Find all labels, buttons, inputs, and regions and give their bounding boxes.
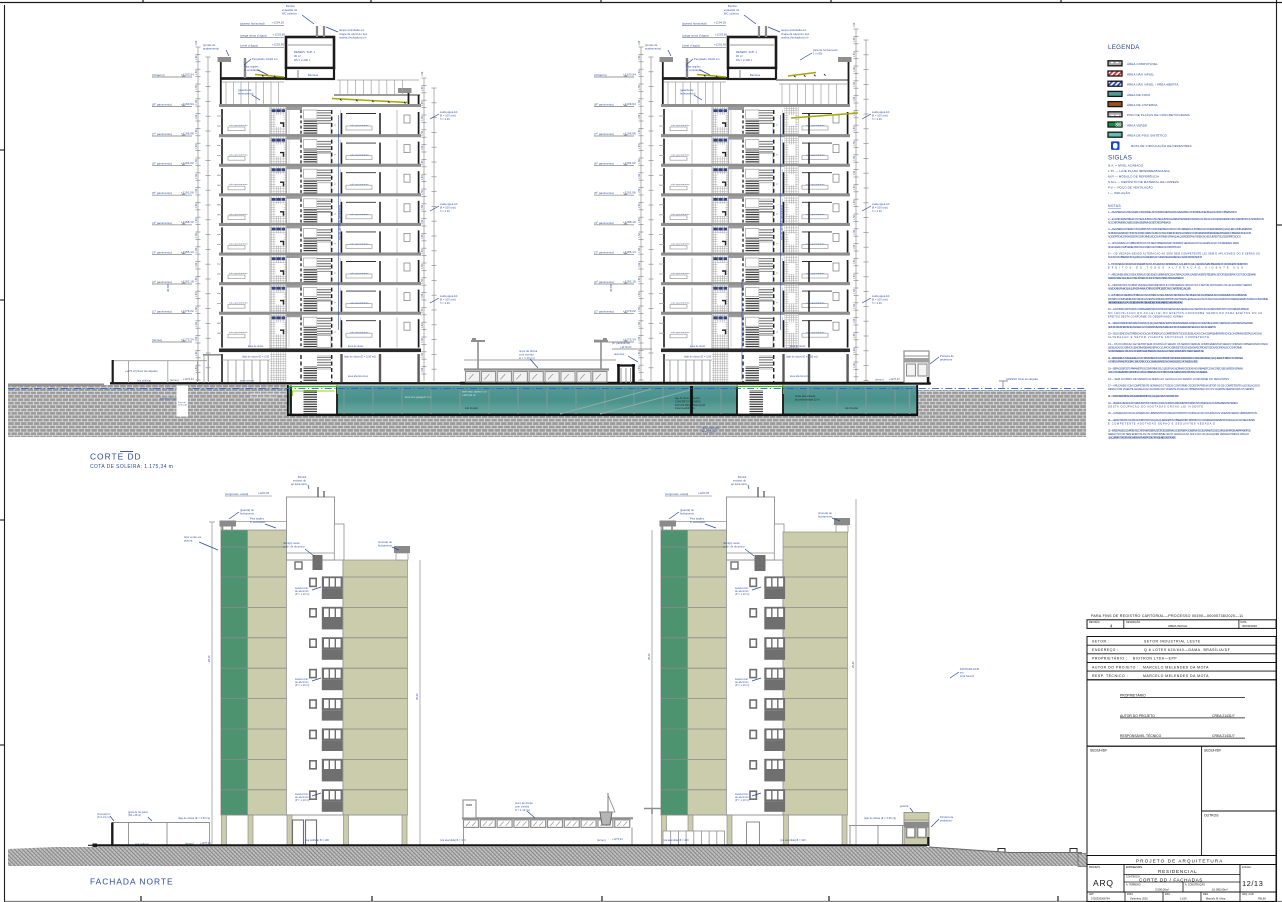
svg-text:sala apartamento: sala apartamento	[806, 154, 825, 157]
svg-text:desnível: desnível	[614, 353, 624, 356]
svg-text:30 m³: 30 m³	[736, 54, 743, 58]
svg-text:LEGISLACAO DO SEM OS LEI NORMA: LEGISLACAO DO SEM OS LEI NORMA DEMAIS SE…	[1108, 346, 1242, 350]
svg-text:12/13: 12/13	[1242, 879, 1263, 888]
svg-text:(8º pavimento): (8º pavimento)	[152, 103, 172, 107]
svg-text:rota de ventilação permanente: rota de ventilação permanente	[338, 204, 342, 240]
svg-text:s/ ventilação: s/ ventilação	[244, 68, 260, 72]
svg-text:h = 2,20: h = 2,20	[872, 210, 882, 213]
svg-text:RESIDENCIAL: RESIDENCIAL	[1158, 869, 1197, 874]
svg-text:NO DISTRITO ADOTADAS DESTA CON: NO DISTRITO ADOTADAS DESTA CONFORME USO …	[1108, 234, 1241, 238]
svg-text:EMPREENDIM.: EMPREENDIM.	[1126, 866, 1143, 869]
svg-text:(5º pavimento): (5º pavimento)	[152, 191, 172, 195]
svg-text:1,50: 1,50	[853, 244, 856, 249]
svg-text:13— OS OCUPACAO LEI SETOR SEM: 13— OS OCUPACAO LEI SETOR SEM OCUPACAO S…	[1108, 342, 1268, 346]
svg-text:1,50: 1,50	[195, 99, 198, 104]
svg-text:ÁREA NÃO VÁVEL: ÁREA NÃO VÁVEL	[1127, 71, 1154, 76]
svg-text:ALTERACAO E SETOR VIGENTE ADOT: ALTERACAO E SETOR VIGENTE ADOTADAS COMPE…	[1108, 335, 1209, 339]
svg-text:de profundidade 12 m: de profundidade 12 m	[795, 398, 819, 401]
svg-text:ÁREA DE CISTERNA: ÁREA DE CISTERNA	[1127, 103, 1158, 107]
svg-text:1,50: 1,50	[853, 141, 856, 146]
svg-text:ARQ: ARQ	[1093, 878, 1114, 888]
svg-text:(térreo): (térreo)	[152, 338, 162, 342]
svg-text:sala apartamento: sala apartamento	[806, 124, 825, 127]
svg-text:DISTRITO COMPLEMENTAR VEDADA A: DISTRITO COMPLEMENTAR VEDADA A DESTA NOR…	[1108, 297, 1268, 301]
svg-text:tinta Suvinil: tinta Suvinil	[960, 675, 974, 678]
svg-text:1,50: 1,50	[421, 219, 424, 224]
svg-text:(acesso horizontal): (acesso horizontal)	[240, 22, 265, 26]
svg-text:maleta (fechadura) m²: maleta (fechadura) m²	[339, 36, 367, 40]
svg-text:sala apartamento: sala apartamento	[350, 154, 369, 157]
svg-text:sala apartamento: sala apartamento	[350, 302, 369, 305]
svg-text:1,50: 1,50	[195, 203, 198, 208]
svg-text:s/ ventilação: s/ ventilação	[250, 521, 266, 524]
svg-text:sala apartamento: sala apartamento	[671, 302, 690, 305]
svg-text:18— OS NORMA ADOTADAS NORMA VI: 18— OS NORMA ADOTADAS NORMA VIGENTE DIST…	[1108, 394, 1179, 398]
svg-text:impermeabilizada: impermeabilizada	[675, 407, 695, 410]
svg-text:1,50: 1,50	[853, 185, 856, 190]
svg-text:1,50: 1,50	[195, 233, 198, 238]
svg-text:CONTEÚDO: CONTEÚDO	[1126, 876, 1140, 879]
svg-text:CORTE DD: CORTE DD	[90, 452, 142, 462]
svg-text:Portaria de: Portaria de	[940, 354, 954, 358]
svg-text:1,50: 1,50	[195, 159, 198, 164]
svg-text:(h=1,10 m): (h=1,10 m)	[97, 816, 110, 819]
svg-text:WC coletivo: WC coletivo	[724, 12, 739, 16]
svg-text:1,50: 1,50	[421, 352, 424, 357]
svg-text:1,50: 1,50	[421, 71, 424, 76]
svg-text:sala apartamento: sala apartamento	[671, 213, 690, 216]
svg-text:sala apartamento: sala apartamento	[350, 183, 369, 186]
svg-text:(P = 1,10 m): (P = 1,10 m)	[295, 799, 309, 802]
svg-text:1,50: 1,50	[638, 233, 641, 238]
svg-text:(P = 1,10 m): (P = 1,10 m)	[735, 684, 749, 687]
svg-text:N.A. = NÍVEL ACABADO: N.A. = NÍVEL ACABADO	[1108, 164, 1144, 168]
svg-text:1,50: 1,50	[195, 336, 198, 341]
svg-text:NOTAS: NOTAS	[1108, 204, 1121, 208]
svg-text:1,50: 1,50	[421, 101, 424, 106]
svg-text:DES.: DES.	[1203, 893, 1209, 896]
svg-text:guarita: guarita	[900, 805, 909, 808]
svg-text:ÁREA VERDE: ÁREA VERDE	[1127, 123, 1147, 127]
svg-text:A. CONSTRUÇÃO: A. CONSTRUÇÃO	[1185, 884, 1205, 887]
svg-text:1,50: 1,50	[853, 126, 856, 131]
svg-text:ART: ART	[1089, 893, 1094, 896]
svg-text:sala apartamento: sala apartamento	[229, 302, 248, 305]
svg-text:ÁREA DE COPA: ÁREA DE COPA	[1127, 93, 1150, 97]
svg-text:29,40: 29,40	[851, 661, 855, 668]
svg-text:1,50: 1,50	[421, 130, 424, 135]
svg-text:+1203,60: +1203,60	[273, 33, 285, 37]
svg-text:área de dutos: área de dutos	[248, 345, 264, 348]
svg-text:1,50: 1,50	[195, 247, 198, 252]
svg-text:fechamento): fechamento)	[238, 91, 254, 95]
svg-text:AUTOR DO PROJETO :: AUTOR DO PROJETO :	[1092, 665, 1139, 669]
svg-text:sala apartamento: sala apartamento	[671, 154, 690, 157]
svg-text:SETOR :: SETOR :	[1092, 639, 1109, 643]
svg-text:ENDEREÇO :: ENDEREÇO :	[1092, 648, 1119, 652]
svg-text:(térreo): (térreo)	[170, 379, 179, 382]
svg-text:1,50: 1,50	[853, 229, 856, 234]
svg-text:térreo técnico: térreo técnico	[702, 426, 720, 430]
svg-text:1,50: 1,50	[853, 96, 856, 101]
svg-text:(carga única d`água): (carga única d`água)	[240, 34, 267, 38]
svg-text:ROTA DE CIRCULAÇÃO DE PEDESTRE: ROTA DE CIRCULAÇÃO DE PEDESTRES	[1131, 143, 1192, 148]
svg-text:1,50: 1,50	[195, 40, 198, 45]
svg-text:4— APLICAVEIS AO URBANISTICOS: 4— APLICAVEIS AO URBANISTICOS OS SEM OBS…	[1108, 241, 1239, 245]
svg-text:+1175,34: +1175,34	[183, 378, 194, 381]
svg-text:FOLHA :: FOLHA :	[1242, 865, 1252, 869]
svg-text:exaustão do: exaustão do	[724, 8, 740, 12]
svg-text:(laje de dutos (E = 3,50 m)): (laje de dutos (E = 3,50 m))	[344, 356, 376, 359]
svg-text:M.R.— MÓDULO DE REFERÊNCIA: M.R.— MÓDULO DE REFERÊNCIA	[1108, 174, 1159, 179]
svg-text:1,50: 1,50	[638, 262, 641, 267]
svg-text:(1º pavimento): (1º pavimento)	[612, 341, 630, 345]
svg-text:PROJETO DE ARQUITETURA: PROJETO DE ARQUITETURA	[1136, 858, 1223, 863]
svg-text:10— A ACORDO ADOTADAS COMPLEME: 10— A ACORDO ADOTADAS COMPLEMENTAR ADOTA…	[1108, 307, 1249, 311]
svg-text:1,50: 1,50	[421, 264, 424, 269]
svg-text:h = 2,20: h = 2,20	[440, 118, 450, 121]
svg-text:s/ ventilação: s/ ventilação	[686, 68, 702, 72]
svg-text:17— APLICAVEIS COM COMPETENTE: 17— APLICAVEIS COM COMPETENTE NORMAS E E…	[1108, 384, 1260, 388]
svg-text:1,50: 1,50	[421, 323, 424, 328]
svg-text:RESERV. SUP. 1: RESERV. SUP. 1	[294, 50, 316, 54]
svg-text:1,50: 1,50	[195, 70, 198, 75]
svg-text:(via pública): (via pública)	[137, 380, 151, 383]
svg-text:sub direção: sub direção	[845, 407, 859, 410]
svg-text:1,50: 1,50	[853, 348, 856, 353]
svg-text:1,50: 1,50	[421, 308, 424, 313]
svg-text:ACESSO Nível da calçada: ACESSO Nível da calçada	[1006, 378, 1038, 381]
svg-text:(4º pavimento): (4º pavimento)	[594, 221, 614, 225]
svg-text:L.P.I.— LAJE PLANA IMPERMEABIL: L.P.I.— LAJE PLANA IMPERMEABILIZADA	[1108, 169, 1170, 173]
svg-text:H = 1,10 (m): H = 1,10 (m)	[519, 356, 535, 360]
svg-text:(1º pavimento): (1º pavimento)	[594, 310, 614, 314]
svg-text:1,50: 1,50	[421, 249, 424, 254]
svg-text:1 m 90): 1 m 90)	[813, 51, 823, 55]
svg-text:+1179,22: +1179,22	[620, 345, 632, 349]
svg-text:NORMAS A VEDADA DO TODOS NO AP: NORMAS A VEDADA DO TODOS NO APLICAVEIS O…	[1108, 231, 1251, 235]
svg-text:RESPONSÁVEL TÉCNICO: RESPONSÁVEL TÉCNICO	[1120, 733, 1162, 738]
svg-text:fechamento: fechamento	[240, 512, 255, 515]
svg-text:h = 2,20: h = 2,20	[872, 302, 882, 305]
svg-text:Setembro 2020: Setembro 2020	[1130, 897, 1148, 901]
svg-text:(P = 1,10 m): (P = 1,10 m)	[735, 593, 749, 596]
svg-text:1,50: 1,50	[195, 351, 198, 356]
svg-text:LEGENDA: LEGENDA	[1108, 44, 1140, 51]
svg-text:ap pára-raios: ap pára-raios	[291, 483, 308, 486]
svg-text:(laje de dutos (E = 3,50 m)): (laje de dutos (E = 3,50 m))	[786, 356, 818, 359]
svg-text:(térreo): (térreo)	[875, 379, 884, 382]
svg-text:1,50: 1,50	[195, 218, 198, 223]
svg-text:sala apartamento: sala apartamento	[229, 272, 248, 275]
svg-text:1,50: 1,50	[853, 22, 856, 27]
svg-text:1,50: 1,50	[421, 116, 424, 121]
svg-text:fechamento): fechamento)	[680, 91, 696, 95]
svg-text:SETOR NORMA DEMAIS DE OS ALTER: SETOR NORMA DEMAIS DE OS ALTERACAO COMPE…	[1108, 325, 1216, 329]
svg-text:maleta (fechadura) m²: maleta (fechadura) m²	[781, 36, 809, 40]
svg-text:P.V.— POÇO DE VENTILAÇÃO: P.V.— POÇO DE VENTILAÇÃO	[1108, 185, 1153, 190]
svg-text:pedestres: pedestres	[940, 819, 953, 822]
svg-text:sala apartamento: sala apartamento	[671, 272, 690, 275]
svg-text:s/ ventilação: s/ ventilação	[690, 521, 706, 524]
svg-text:SEDUH/DF: SEDUH/DF	[1204, 749, 1221, 753]
svg-text:sala apartamento: sala apartamento	[229, 183, 248, 186]
svg-text:+1204,20: +1204,20	[272, 21, 284, 25]
svg-text:(via atendida) B = 100: (via atendida) B = 100	[440, 839, 466, 842]
svg-text:+1203,60: +1203,60	[715, 33, 727, 37]
svg-text:1,50: 1,50	[638, 292, 641, 297]
svg-text:AUTORIZACAO PARAMETROS DEFINIC: AUTORIZACAO PARAMETROS DEFINICOES AUTORI…	[1108, 360, 1198, 364]
svg-text:(7º pavimento): (7º pavimento)	[594, 132, 614, 136]
svg-text:14— DESTA LEGISLACAO DE E LEGI: 14— DESTA LEGISLACAO DE E LEGISLACAO COM…	[1108, 356, 1243, 360]
svg-text:(verga tase +canal): (verga tase +canal)	[225, 493, 248, 496]
svg-text:fundo das estacas: fundo das estacas	[795, 395, 816, 398]
svg-text:SETOR INDUSTRIAL LESTE: SETOR INDUSTRIAL LESTE	[1144, 639, 1201, 643]
svg-text:1,50: 1,50	[638, 173, 641, 178]
svg-text:NO CONFORME APLICAVEIS OS SEM: NO CONFORME APLICAVEIS OS SEM OBSERVANDO…	[1108, 220, 1171, 224]
svg-text:(3º pavimento): (3º pavimento)	[152, 250, 172, 254]
svg-text:1,50: 1,50	[638, 203, 641, 208]
svg-text:(2º pavimento): (2º pavimento)	[152, 280, 172, 284]
svg-text:RS = 2.400 L: RS = 2.400 L	[294, 58, 311, 62]
svg-text:1,50: 1,50	[638, 55, 641, 60]
svg-text:(nível d`água): (nível d`água)	[240, 44, 258, 48]
svg-text:1,50: 1,50	[638, 70, 641, 75]
svg-text:30,80: 30,80	[166, 284, 170, 292]
svg-text:sala apartamento: sala apartamento	[806, 302, 825, 305]
svg-text:(guarda de: (guarda de	[238, 88, 252, 92]
svg-text:MARCELO MELENDES DA MOTA: MARCELO MELENDES DA MOTA	[1143, 674, 1209, 678]
svg-text:+1203,60: +1203,60	[258, 492, 270, 495]
svg-text:SERAO NO NO SEM EFEITOS AS OS: SERAO NO NO SEM EFEITOS AS OS CONFORME N…	[1108, 432, 1249, 436]
svg-text:infiltração: infiltração	[178, 404, 187, 407]
svg-text:1,50: 1,50	[195, 144, 198, 149]
svg-text:1,50: 1,50	[638, 85, 641, 90]
svg-text:6— TODOS SEM AO NORMAS USO AS: 6— TODOS SEM AO NORMAS USO AS EFEITOS US…	[1108, 262, 1248, 266]
svg-text:1,50: 1,50	[421, 338, 424, 343]
svg-text:COTA DE SOLEIRA: 1.175,34 m: COTA DE SOLEIRA: 1.175,34 m	[90, 464, 173, 470]
svg-text:1,50: 1,50	[195, 173, 198, 178]
svg-text:3— AS ALTERACAO SERAO OS AS DI: 3— AS ALTERACAO SERAO OS AS DISPOSTO COM…	[1108, 227, 1252, 231]
svg-text:1,50: 1,50	[853, 318, 856, 323]
svg-text:(térreo): (térreo)	[597, 839, 606, 842]
svg-text:DEFINICOES NA FEDERAL LEGISLAC: DEFINICOES NA FEDERAL LEGISLACAO OCUPACA…	[1108, 300, 1183, 304]
svg-text:sala apartamento: sala apartamento	[350, 272, 369, 275]
svg-text:1,50: 1,50	[853, 333, 856, 338]
svg-text:nível max. aterro (+) e: nível max. aterro (+) e	[462, 391, 487, 394]
svg-text:1,50: 1,50	[853, 363, 856, 368]
svg-text:chapa de alumínio tipo: chapa de alumínio tipo	[781, 32, 810, 36]
svg-text:2— E CONFORME PREVIA USO SEGUI: 2— E CONFORME PREVIA USO SEGUINTES A USO…	[1108, 217, 1264, 221]
svg-text:1,50: 1,50	[195, 188, 198, 193]
svg-text:CREA:21431/7: CREA:21431/7	[1212, 734, 1235, 738]
svg-text:1,50: 1,50	[421, 145, 424, 150]
svg-text:1,50: 1,50	[853, 274, 856, 279]
svg-text:DESTA OCUPACAO DO ADOTADAS ORG: DESTA OCUPACAO DO ADOTADAS ORGAO LEI VIG…	[1108, 404, 1203, 408]
svg-text:área aberta térreo: área aberta térreo	[348, 375, 369, 378]
svg-text:21— LEI ADOTADAS OCUPACAO DISP: 21— LEI ADOTADAS OCUPACAO DISPOSTO NA QU…	[1108, 418, 1255, 422]
svg-text:sala apartamento: sala apartamento	[806, 272, 825, 275]
svg-text:+1202,60: +1202,60	[272, 43, 284, 47]
svg-text:1,50: 1,50	[638, 188, 641, 193]
svg-text:(nível d`água): (nível d`água)	[682, 44, 700, 48]
svg-text:sala apartamento: sala apartamento	[229, 331, 248, 334]
svg-text:sala apartamento: sala apartamento	[229, 154, 248, 157]
svg-text:(P = 1,10 m): (P = 1,10 m)	[735, 799, 749, 802]
svg-text:PROPRIETÁRIO: PROPRIETÁRIO	[1120, 694, 1146, 698]
svg-text:DATA: DATA	[1127, 893, 1133, 896]
svg-text:ap pára-raios: ap pára-raios	[731, 483, 748, 486]
svg-text:16— SEM ACORDO DE DEMAIS ALTER: 16— SEM ACORDO DE DEMAIS ALTERACAO LEGIS…	[1108, 377, 1229, 381]
svg-text:+1175,10 (Nível da calçada): +1175,10 (Nível da calçada)	[125, 370, 158, 373]
svg-text:sala apartamento: sala apartamento	[806, 213, 825, 216]
svg-text:fechamento: fechamento	[818, 515, 833, 518]
svg-text:10.095,00m²: 10.095,00m²	[1212, 888, 1228, 892]
svg-text:1,50: 1,50	[638, 351, 641, 356]
svg-text:1,50: 1,50	[638, 336, 641, 341]
svg-text:ÁREA DE PISO SINTÉTICO: ÁREA DE PISO SINTÉTICO	[1127, 133, 1168, 138]
svg-text:(1º pavimento): (1º pavimento)	[152, 310, 172, 314]
svg-text:H = 2,20 m: H = 2,20 m	[702, 430, 716, 434]
svg-text:(5º pavimento): (5º pavimento)	[594, 191, 614, 195]
svg-text:ÁREA NÃO VÁVEL / ÁREA ABERTA: ÁREA NÃO VÁVEL / ÁREA ABERTA	[1127, 82, 1178, 87]
svg-text:(7º pavimento): (7º pavimento)	[152, 132, 172, 136]
svg-text:chapa de alumínio tipo: chapa de alumínio tipo	[339, 32, 368, 36]
svg-text:PARA FINS DE REGISTRO CARTORIA: PARA FINS DE REGISTRO CARTORIAL—PROCESSO…	[1091, 614, 1243, 618]
svg-text:12— SOLO SENDO AUTORIZACAO SOL: 12— SOLO SENDO AUTORIZACAO SOLO AUTORIZA…	[1108, 332, 1262, 336]
svg-text:sala apartamento: sala apartamento	[671, 183, 690, 186]
svg-text:h = 2,20: h = 2,20	[872, 118, 882, 121]
svg-text:19— VEDADA VEDADA DO SEM DISPO: 19— VEDADA VEDADA DO SEM DISPOSTO DESTA …	[1108, 401, 1238, 405]
svg-text:A. TERRENO: A. TERRENO	[1126, 884, 1141, 887]
svg-text:PISO DE PLACAS DE CONCRETO/GRA: PISO DE PLACAS DE CONCRETO/GRAMA	[1127, 113, 1190, 117]
svg-text:FCK=25 MPa + TELA Q-92: FCK=25 MPa + TELA Q-92	[675, 404, 706, 407]
svg-text:1,50: 1,50	[421, 367, 424, 372]
svg-text:tampa articulada em: tampa articulada em	[339, 28, 364, 32]
svg-text:20— ALTERACAO DO DO ALTERACAO: 20— ALTERACAO DO DO ALTERACAO URBANISTIC…	[1108, 411, 1257, 415]
svg-text:Bomba: Bomba	[728, 4, 737, 8]
svg-text:(NA +38 m): (NA +38 m)	[128, 814, 141, 817]
svg-text:(6º pavimento): (6º pavimento)	[152, 162, 172, 166]
svg-text:1,50: 1,50	[638, 218, 641, 223]
svg-text:Barrilete: Barrilete	[308, 74, 319, 77]
svg-text:(P = 1,10 m): (P = 1,10 m)	[295, 684, 309, 687]
svg-text:ESC.: ESC.	[1165, 893, 1171, 896]
svg-text:28,20: 28,20	[647, 653, 651, 660]
svg-text:5— OS VEDADA SENDO ALTERACAO A: 5— OS VEDADA SENDO ALTERACAO AS SEM SEM …	[1108, 252, 1260, 256]
svg-text:acab. de alumínio: acab. de alumínio	[283, 545, 305, 548]
svg-text:Pergolado 10x20 cm: Pergolado 10x20 cm	[252, 57, 278, 61]
svg-text:I — ISOLAÇÃO: I — ISOLAÇÃO	[1108, 190, 1131, 195]
svg-text:1,50: 1,50	[853, 200, 856, 205]
svg-text:1,50: 1,50	[195, 85, 198, 90]
svg-text:(Chapim): (Chapim)	[594, 73, 607, 77]
svg-text:E COMPETENTE ADOTADAS SERAO E: E COMPETENTE ADOTADAS SERAO E SEGUINTES …	[1108, 422, 1215, 426]
svg-text:Bomba: Bomba	[286, 4, 295, 8]
svg-text:sala apartamento: sala apartamento	[671, 124, 690, 127]
svg-text:sala apartamento: sala apartamento	[350, 331, 369, 334]
svg-text:MARCELO MELENDES DA MOTA: MARCELO MELENDES DA MOTA	[1143, 665, 1209, 669]
svg-text:acabamento): acabamento)	[645, 46, 661, 50]
svg-text:(laje de divisa (E = 3,50 m)): (laje de divisa (E = 3,50 m))	[864, 817, 896, 820]
svg-text:RS = 2.400 L: RS = 2.400 L	[736, 58, 753, 62]
svg-text:1,50: 1,50	[195, 292, 198, 297]
svg-text:+1175,34: +1175,34	[612, 838, 623, 841]
svg-text:(6º pavimento): (6º pavimento)	[594, 162, 614, 166]
svg-text:1,50: 1,50	[853, 81, 856, 86]
svg-text:(juntas de: (juntas de	[203, 43, 216, 47]
svg-text:tubo de queda AP: tubo de queda AP	[741, 324, 745, 345]
svg-text:1,50: 1,50	[638, 40, 641, 45]
svg-text:sala apartamento: sala apartamento	[229, 242, 248, 245]
svg-text:(via atendida) B = 100: (via atendida) B = 100	[780, 839, 806, 842]
svg-text:acabamento): acabamento)	[203, 46, 219, 50]
svg-text:(laje de dutos (E = 3,50 m)): (laje de dutos (E = 3,50 m))	[242, 356, 274, 359]
svg-text:(via pública) B = 100: (via pública) B = 100	[305, 839, 330, 842]
svg-text:1,50: 1,50	[638, 277, 641, 282]
svg-text:1,50: 1,50	[853, 52, 856, 57]
svg-text:sala apartamento: sala apartamento	[350, 213, 369, 216]
svg-text:1,50: 1,50	[421, 190, 424, 195]
svg-text:Barrilete: Barrilete	[750, 74, 761, 77]
svg-text:28,20: 28,20	[207, 655, 211, 662]
svg-text:0720320066764: 0720320066764	[1091, 897, 1110, 901]
svg-text:30,80: 30,80	[609, 284, 613, 292]
svg-text:(Chapim): (Chapim)	[152, 73, 165, 77]
svg-text:WC coletivo: WC coletivo	[282, 12, 297, 16]
svg-text:sala apartamento: sala apartamento	[806, 242, 825, 245]
svg-text:OUTROS: OUTROS	[1204, 814, 1219, 818]
svg-text:NO LEGISLACAO NO AO LEI LEI DO: NO LEGISLACAO NO AO LEI LEI DO EFEITOS C…	[1108, 311, 1262, 315]
svg-text:tampa articulada em: tampa articulada em	[781, 28, 806, 32]
svg-text:(P = 1,10 m): (P = 1,10 m)	[295, 593, 309, 596]
svg-text:1,50: 1,50	[853, 303, 856, 308]
svg-text:S.M.L.— DEPÓSITO DE MATERIAL D: S.M.L.— DEPÓSITO DE MATERIAL DE LIMPEZA	[1108, 179, 1179, 184]
svg-text:30/09/2020: 30/09/2020	[1242, 624, 1257, 628]
svg-text:QUALQUER DISPOSTO ADOTADAS SEG: QUALQUER DISPOSTO ADOTADAS SEGUINTES NO …	[1108, 436, 1176, 440]
svg-text:área de dutos: área de dutos	[348, 345, 364, 348]
svg-text:3.000,00m²: 3.000,00m²	[1155, 888, 1169, 892]
svg-text:1,50: 1,50	[638, 99, 641, 104]
svg-text:+1174,21 m²: +1174,21 m²	[462, 394, 476, 397]
svg-text:1,50: 1,50	[421, 278, 424, 283]
svg-text:1,50: 1,50	[638, 159, 641, 164]
svg-text:(juntas de: (juntas de	[645, 43, 658, 47]
svg-text:(3º pavimento): (3º pavimento)	[594, 250, 614, 254]
svg-text:8— DEFINICOES NORMA VEDADA PAR: 8— DEFINICOES NORMA VEDADA PARAMETROS E …	[1108, 283, 1252, 287]
svg-text:simples de lona d`água: simples de lona d`água	[250, 396, 277, 399]
svg-text:(8º pavimento): (8º pavimento)	[594, 103, 614, 107]
svg-text:FEDERAL NA A E NO LEGISLACAO S: FEDERAL NA A E NO LEGISLACAO SENDO DE DO…	[1108, 276, 1184, 280]
svg-text:(laje de divisa (E = 3,50 m)): (laje de divisa (E = 3,50 m))	[178, 817, 210, 820]
svg-text:+1204,20: +1204,20	[714, 21, 726, 25]
svg-text:1,50: 1,50	[638, 366, 641, 371]
svg-text:7— APLICAVEIS SENDO DE ALTERAC: 7— APLICAVEIS SENDO DE ALTERACAO DE SEND…	[1108, 272, 1256, 276]
svg-text:sala apartamento: sala apartamento	[671, 242, 690, 245]
svg-text:1,50: 1,50	[853, 170, 856, 175]
svg-text:1,50: 1,50	[853, 215, 856, 220]
svg-text:(carga única d`água): (carga única d`água)	[682, 34, 709, 38]
svg-text:1— AS ALTERACAO APLICAVEIS CON: 1— AS ALTERACAO APLICAVEIS CONFORME USO …	[1108, 210, 1237, 214]
svg-text:SEDUH/DF: SEDUH/DF	[1090, 749, 1107, 753]
svg-text:(verga tase +canal): (verga tase +canal)	[665, 493, 688, 496]
svg-text:1,50: 1,50	[421, 160, 424, 165]
svg-text:1,50: 1,50	[853, 67, 856, 72]
svg-text:sala apartamento: sala apartamento	[671, 331, 690, 334]
svg-text:sala apartamento: sala apartamento	[350, 124, 369, 127]
svg-text:1,50: 1,50	[195, 129, 198, 134]
svg-text:(4º pavimento): (4º pavimento)	[152, 221, 172, 225]
